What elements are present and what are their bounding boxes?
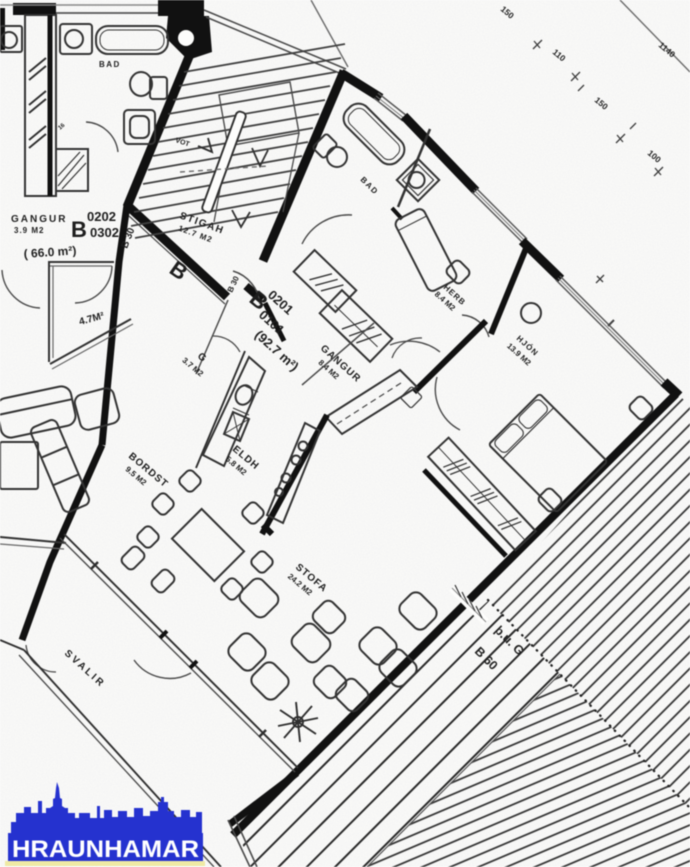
svg-text:HRAUNHAMAR: HRAUNHAMAR [12,836,199,863]
svg-text:GANGUR: GANGUR [11,214,67,225]
svg-text:0302: 0302 [90,225,119,240]
svg-text:3.9 M2: 3.9 M2 [14,226,44,235]
svg-text:0202: 0202 [87,209,116,224]
svg-text:B: B [71,217,87,242]
svg-text:BAD: BAD [99,60,121,69]
